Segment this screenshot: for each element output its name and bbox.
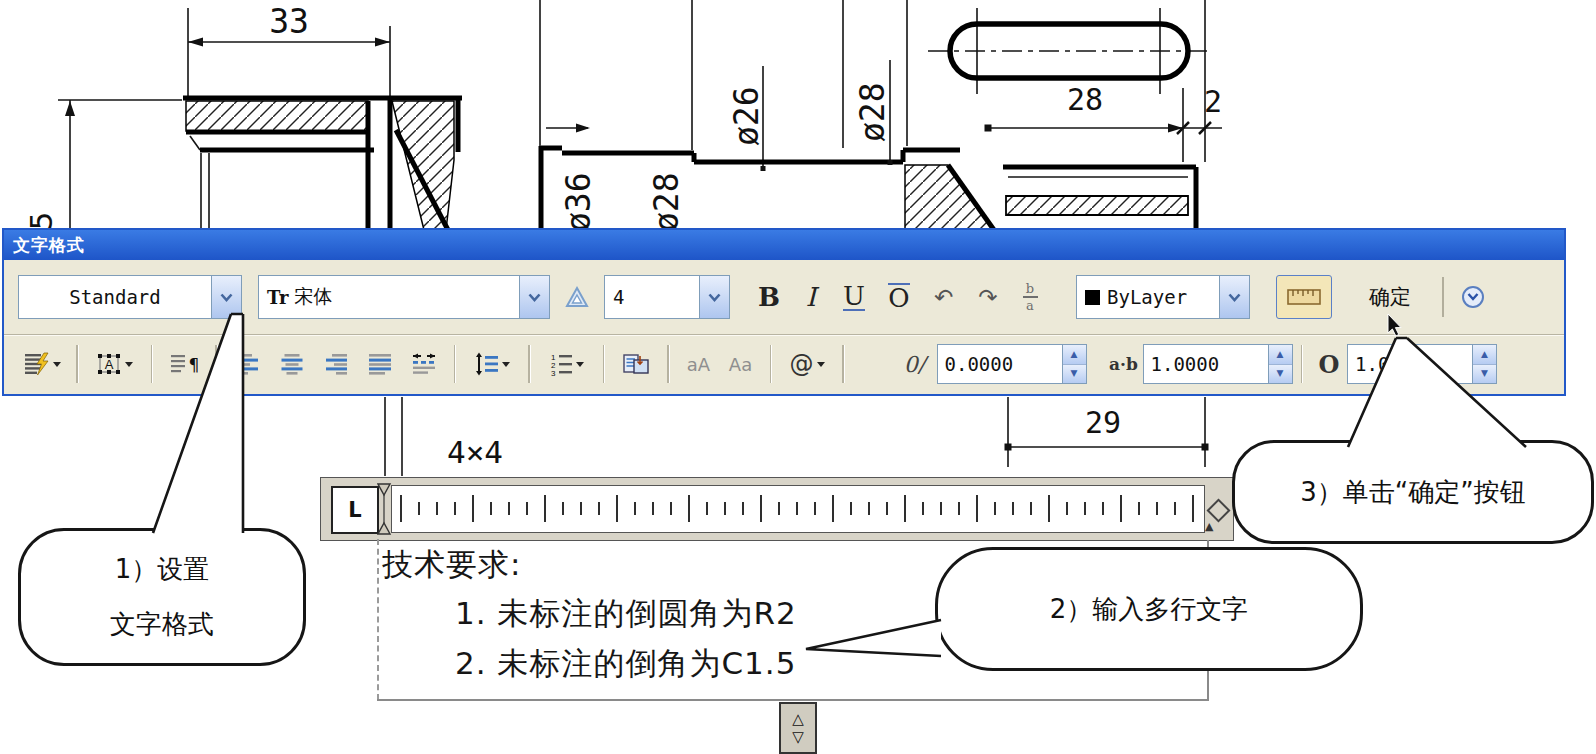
editor-line-3[interactable]: 2. 未标注的倒角为C1.5 (455, 643, 796, 685)
justification-icon: A (96, 352, 122, 376)
oblique-angle-value: 0.0000 (938, 345, 1062, 383)
svg-text:A: A (105, 357, 114, 372)
symbol-button[interactable]: @ (780, 344, 834, 384)
text-height-combo[interactable]: 4 (604, 275, 730, 319)
align-justify-icon (368, 353, 392, 375)
callout-step1: 1）设置 文字格式 (18, 528, 306, 666)
text-height-value: 4 (605, 276, 699, 318)
tracking-value: 1.0000 (1144, 345, 1268, 383)
font-value: 宋体 (295, 284, 333, 310)
spinner-down-icon[interactable]: ▼ (1473, 365, 1496, 384)
insert-field-icon (622, 352, 650, 376)
svg-text:3: 3 (551, 369, 556, 376)
cad-drawing: 33 5 28 2 (0, 0, 1596, 232)
callout-step2-tail (806, 620, 941, 656)
svg-text:28: 28 (1067, 82, 1103, 117)
chevron-down-icon[interactable] (1219, 276, 1249, 318)
options-button[interactable] (1454, 277, 1492, 317)
callout-step3: 3）单击“确定”按钮 (1232, 440, 1594, 544)
ruler-strip[interactable] (391, 485, 1205, 533)
separator (842, 345, 845, 383)
redo-icon[interactable]: ↷ (966, 276, 1010, 318)
oblique-angle-spinner[interactable]: 0.0000 ▲ ▼ (937, 344, 1087, 384)
dimension-28-slot: 28 2 (985, 82, 1223, 134)
screenshot-root: 33 5 28 2 (0, 0, 1596, 754)
chevron-circle-icon (1460, 284, 1486, 310)
grip-up-icon: △ (792, 710, 804, 728)
align-right-button[interactable] (314, 344, 358, 384)
separator (454, 345, 457, 383)
svg-text:ø26: ø26 (727, 86, 766, 146)
editor-line-2[interactable]: 1. 未标注的倒圆角为R2 (455, 593, 797, 635)
separator (76, 345, 79, 383)
hatch-band-left (186, 101, 368, 131)
toolbar-bottom: A ¶ (4, 335, 1564, 392)
ruler-ticks-minor (400, 502, 1200, 515)
text-style-value: Standard (19, 276, 211, 318)
separator (1301, 345, 1304, 383)
line-spacing-button[interactable] (464, 344, 520, 384)
editor-left-border (377, 539, 379, 700)
spinner-up-icon[interactable]: ▲ (1269, 345, 1292, 365)
chevron-down-icon[interactable] (699, 276, 729, 318)
dimension-29: 29 (1085, 405, 1121, 440)
text-format-dialog: 文字格式 Standard Tr 宋体 (2, 228, 1566, 396)
svg-text:33: 33 (269, 2, 309, 41)
uppercase-button[interactable]: Aa (720, 344, 762, 384)
tab-style-box[interactable]: L (331, 486, 379, 534)
numbering-icon: 1 2 3 (549, 352, 573, 376)
align-justify-button[interactable] (358, 344, 402, 384)
editor-bottom-border (377, 699, 1209, 701)
justification-button[interactable]: A (87, 344, 143, 384)
align-left-icon (236, 353, 260, 375)
dialog-titlebar[interactable]: 文字格式 (4, 230, 1564, 260)
hatch-wedge-right (905, 165, 993, 230)
label-4x4: 4×4 (447, 434, 503, 470)
svg-text:ø28: ø28 (853, 82, 892, 142)
svg-text:ø28: ø28 (647, 172, 686, 232)
stack-button[interactable]: b a (1010, 276, 1050, 318)
spinner-up-icon[interactable]: ▲ (1063, 345, 1086, 365)
align-left-button[interactable] (226, 344, 270, 384)
underline-button[interactable]: U (832, 276, 876, 318)
width-factor-value: 1.0000 (1348, 345, 1472, 383)
align-distribute-icon (412, 353, 436, 375)
separator (151, 345, 154, 383)
toolbar-top: Standard Tr 宋体 4 (4, 260, 1564, 335)
numbering-button[interactable]: 1 2 3 (539, 344, 595, 384)
separator (215, 345, 218, 383)
color-swatch (1085, 290, 1100, 305)
undo-icon[interactable]: ↶ (922, 276, 966, 318)
overline-button[interactable]: O (876, 276, 922, 318)
height-grip[interactable]: △ ▽ (779, 702, 817, 754)
paragraph-icon: ¶ (170, 352, 198, 376)
width-factor-icon: O (1311, 344, 1347, 384)
color-value: ByLayer (1107, 286, 1187, 308)
separator (770, 345, 773, 383)
truetype-icon: Tr (267, 287, 289, 308)
ruler-icon (1287, 287, 1321, 307)
lowercase-button[interactable]: aA (678, 344, 720, 384)
paragraph-button[interactable]: ¶ (161, 344, 207, 384)
width-factor-spinner[interactable]: 1.0000 ▲ ▼ (1347, 344, 1497, 384)
bold-button[interactable]: B (748, 276, 790, 318)
align-right-icon (324, 353, 348, 375)
separator (528, 345, 531, 383)
chevron-down-icon[interactable] (519, 276, 549, 318)
tracking-spinner[interactable]: 1.0000 ▲ ▼ (1143, 344, 1293, 384)
align-distribute-button[interactable] (402, 344, 446, 384)
hatch-band-right (1006, 196, 1188, 215)
columns-icon (24, 352, 50, 376)
dimension-5: 5 (24, 101, 75, 230)
ruler-toggle-button[interactable] (1276, 275, 1332, 319)
annotative-icon[interactable] (564, 277, 590, 317)
mtext-ruler[interactable]: L ▲ (320, 477, 1234, 541)
line-spacing-icon (475, 352, 499, 376)
separator (603, 345, 606, 383)
svg-text:2: 2 (1204, 84, 1222, 119)
separator (667, 345, 670, 383)
diameter-labels: ø36 ø28 ø26 ø28 (559, 82, 892, 232)
right-indent-marker[interactable]: ▲ (1205, 520, 1213, 533)
spinner-up-icon[interactable]: ▲ (1473, 345, 1496, 365)
oblique-angle-icon: 0/ (893, 344, 937, 384)
chevron-down-icon[interactable] (211, 276, 241, 318)
svg-text:¶: ¶ (189, 355, 198, 375)
ok-button[interactable]: 确定 (1348, 283, 1432, 311)
spinner-down-icon[interactable]: ▼ (1269, 365, 1292, 384)
font-combo[interactable]: Tr 宋体 (258, 275, 550, 319)
width-grip-diamond[interactable] (1206, 498, 1230, 522)
tracking-icon: a·b (1105, 344, 1143, 384)
separator (1442, 277, 1444, 317)
align-center-button[interactable] (270, 344, 314, 384)
columns-button[interactable] (16, 344, 68, 384)
dialog-title: 文字格式 (13, 234, 85, 257)
italic-button[interactable]: I (790, 276, 832, 318)
insert-field-button[interactable] (613, 344, 659, 384)
align-center-icon (280, 353, 304, 375)
text-style-combo[interactable]: Standard (18, 275, 242, 319)
svg-text:ø36: ø36 (559, 172, 598, 232)
dimension-33: 33 (188, 2, 390, 47)
spinner-down-icon[interactable]: ▼ (1063, 365, 1086, 384)
hatch-wedge-left (392, 101, 454, 230)
color-combo[interactable]: ByLayer (1076, 275, 1250, 319)
editor-line-1[interactable]: 技术要求: (382, 544, 521, 586)
grip-down-icon: ▽ (792, 728, 804, 746)
callout-step2: 2）输入多行文字 (935, 547, 1363, 671)
